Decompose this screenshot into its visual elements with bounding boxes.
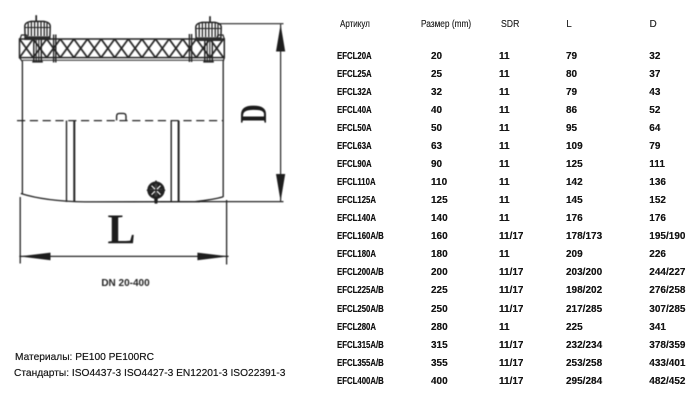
svg-text:DN 20-400: DN 20-400 [101,278,150,289]
svg-text:L: L [107,208,135,254]
svg-text:D: D [233,104,275,123]
